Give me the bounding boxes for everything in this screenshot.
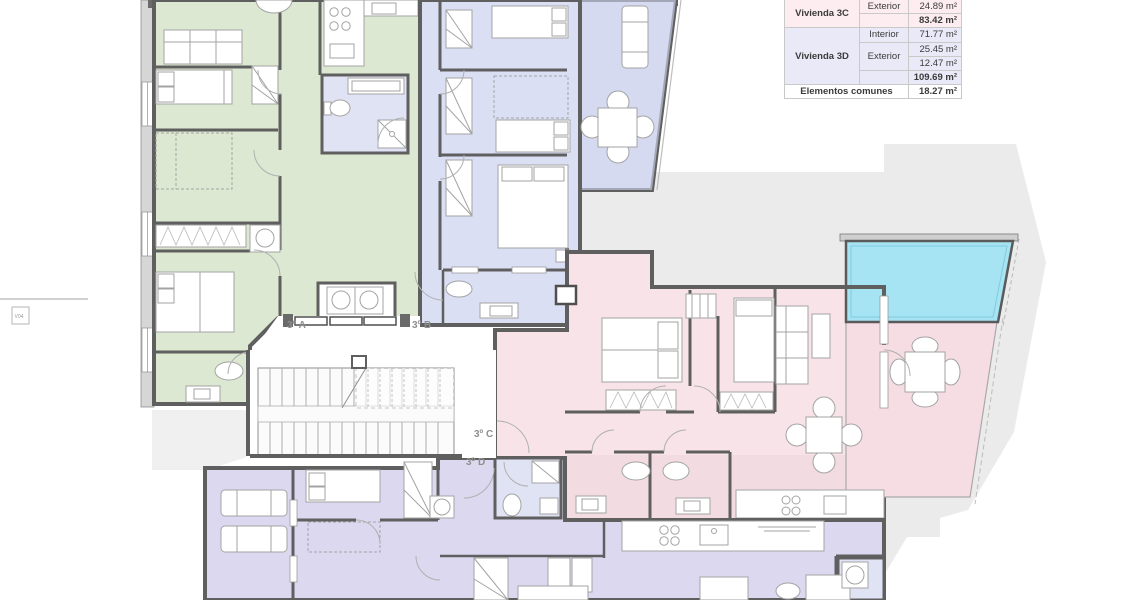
zone-cell: Interior [860, 28, 909, 42]
window-tag: V04 [15, 314, 24, 320]
toilet [446, 281, 472, 297]
toilet [330, 100, 350, 116]
entry-door-box [556, 286, 576, 304]
door-leaf [330, 317, 362, 325]
table-row: Elementos comunes 18.27 m² [785, 85, 962, 99]
sun-lounger [221, 526, 287, 552]
common-areas [246, 314, 496, 458]
dining-table [806, 417, 842, 453]
chair [813, 451, 835, 473]
kitchen-sink [330, 44, 354, 58]
zone-cell: Exterior [860, 42, 909, 70]
toilet [215, 362, 243, 380]
bed [518, 586, 588, 600]
sink [540, 498, 558, 514]
value-cell: 24.89 m² [909, 0, 962, 14]
unit-label-3b: 3º B [412, 320, 431, 331]
value-cell: 71.77 m² [909, 28, 962, 42]
floor-plan-canvas: V04 [0, 0, 1140, 600]
floor-plan-drawing: V04 [0, 0, 1140, 600]
stair-post [352, 356, 366, 368]
pool [840, 234, 1019, 326]
terrace-table [598, 108, 637, 147]
console [812, 314, 830, 358]
unit-name-cell: Vivienda 3D [785, 28, 860, 85]
dining-table [700, 577, 748, 600]
pool-water [846, 241, 1013, 322]
chair [786, 424, 808, 446]
kitchen-sink [824, 496, 846, 514]
chair [813, 397, 835, 419]
common-name-cell: Elementos comunes [785, 85, 909, 99]
chair [776, 583, 800, 599]
toilet [663, 462, 689, 480]
washing-machines [327, 287, 383, 314]
value-cell: 12.47 m² [909, 56, 962, 70]
zone-cell: Exterior [860, 0, 909, 14]
common-value-cell: 18.27 m² [909, 85, 962, 99]
table-row: Vivienda 3C Exterior 24.89 m² [785, 0, 962, 14]
total-cell: 109.69 m² [909, 70, 962, 84]
table-row: Vivienda 3D Interior 71.77 m² [785, 28, 962, 42]
wardrobe-strip [720, 392, 773, 410]
sofa [776, 306, 808, 384]
unit-label-3d: 3º D [466, 457, 485, 468]
facade-windows [142, 82, 153, 372]
door-leaf [364, 317, 396, 325]
unit-label-3a: 3º A [287, 320, 306, 331]
sofa [164, 30, 242, 64]
unit-label-3c: 3º C [474, 429, 493, 440]
stair-landing [258, 406, 454, 422]
terrace-table [905, 352, 945, 392]
empty-cell [860, 70, 909, 84]
empty-cell [860, 14, 909, 28]
lower-floor-shadow [152, 410, 256, 470]
unit-name-cell: Vivienda 3C [785, 0, 860, 28]
area-summary-table: Vivienda 3C Exterior 24.89 m² 83.42 m² V… [784, 0, 962, 99]
sun-lounger [622, 6, 648, 68]
kitchen-counter [736, 490, 884, 518]
closet [686, 294, 716, 318]
toilet [622, 462, 650, 480]
value-cell: 25.45 m² [909, 42, 962, 56]
total-cell: 83.42 m² [909, 14, 962, 28]
sun-lounger [221, 490, 287, 516]
door-post [400, 314, 410, 327]
toilet [503, 494, 521, 516]
chair [840, 424, 862, 446]
stair-upper-flight-dashed [356, 368, 454, 408]
right-wall-windows [880, 296, 888, 408]
